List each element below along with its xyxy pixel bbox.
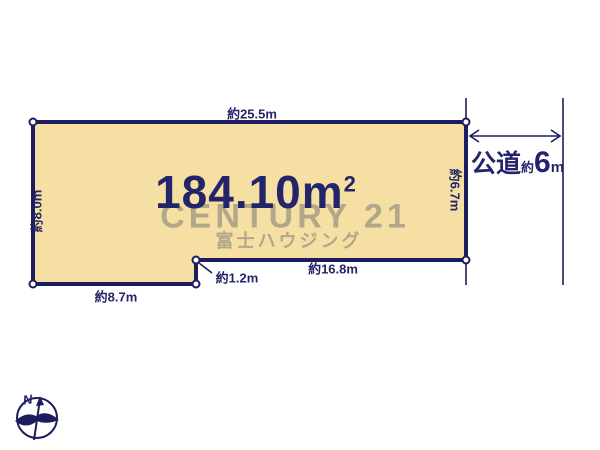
dimension-bottom-right: 約16.8m bbox=[308, 259, 358, 278]
dimension-right: 約6.7m bbox=[447, 169, 466, 212]
area-superscript: 2 bbox=[344, 172, 357, 197]
compass-north-label: N bbox=[22, 391, 33, 407]
compass-icon bbox=[15, 396, 59, 440]
dimension-notch: 約1.2m bbox=[216, 268, 259, 287]
notch-leader-line bbox=[199, 263, 212, 273]
road-width-value: 6 bbox=[534, 146, 551, 180]
road-annotation: 公道 約 6 m bbox=[471, 144, 564, 180]
land-plot-diagram: 約25.5m 約8.0m 約6.7m 約8.7m 約1.2m 約16.8m 18… bbox=[0, 0, 600, 450]
road-width-unit: m bbox=[551, 159, 564, 176]
dimension-top: 約25.5m bbox=[227, 104, 277, 123]
dimension-left: 約8.0m bbox=[27, 190, 46, 233]
area-number: 184.10m bbox=[155, 166, 344, 218]
road-type: 公道 bbox=[471, 144, 521, 180]
area-value: 184.10m2 bbox=[155, 165, 357, 219]
road-width-arrow bbox=[470, 130, 560, 142]
road-approx: 約 bbox=[521, 157, 534, 176]
watermark-company: 富士ハウジング bbox=[216, 227, 363, 253]
dimension-bottom-left: 約8.7m bbox=[95, 287, 138, 306]
